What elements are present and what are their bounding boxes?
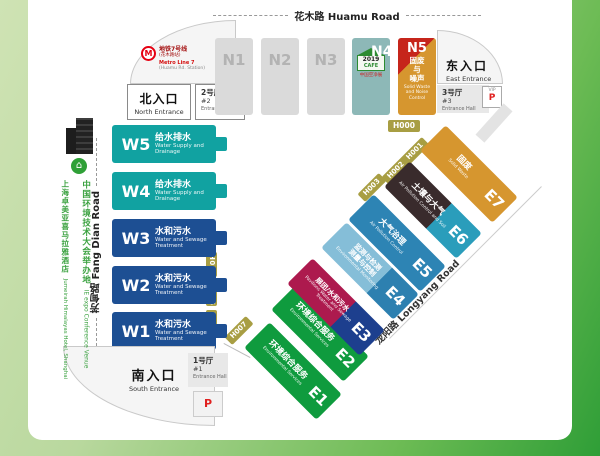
aisle-h007: H007 — [225, 316, 254, 345]
road-huamu-label: 花木路 Huamu Road — [294, 8, 399, 23]
road-dash — [213, 15, 288, 16]
building-icon — [66, 118, 94, 154]
hall-n2: N2 — [261, 38, 299, 115]
hall-tab — [216, 278, 227, 292]
hall-e6-text: 土壤与大气 Air Pollution Control and Soil — [395, 172, 455, 232]
hall-w5-cn: 给水排水 — [155, 133, 216, 143]
hall-n5-en: Solid Waste and Noise Control — [398, 85, 436, 101]
metro-text: 地铁7号线 (花木路站) Metro Line 7 (Huamu Rd. Sta… — [159, 46, 205, 71]
hall-w1: W1 水和污水 Water and Sewage Treatment — [112, 312, 216, 350]
hall-w3: W3 水和污水 Water and Sewage Treatment — [112, 219, 216, 257]
hall1-num: #1 — [193, 365, 228, 373]
building-icon-tower — [76, 118, 93, 154]
venue-note: 中国环境技术大会举办地 IE expo Conference Venue 上海卓… — [54, 180, 96, 390]
venue-note-cn2: 上海卓美亚喜马拉雅酒店 — [61, 180, 70, 274]
road-dash — [96, 138, 97, 186]
hall-w2: W2 水和污水 Water and Sewage Treatment — [112, 266, 216, 304]
parking-box: P — [193, 391, 223, 417]
hall-w2-en: Water and Sewage Treatment — [155, 284, 216, 297]
hall-w4: W4 给水排水 Water Supply and Drainage — [112, 172, 216, 210]
hall-w1-label: W1 — [117, 322, 155, 341]
hall-n5-cn: 固废 — [398, 56, 436, 65]
metro-station-en: (Huamu Rd. Station) — [159, 66, 205, 71]
entrance-hall-1: 1号厅 #1 Entrance Hall — [188, 353, 228, 387]
expo-floorplan: 花木路 Huamu Road 芳甸路 Fang Dian Road 龙阳路 Lo… — [0, 0, 600, 456]
hall-tab — [216, 324, 227, 338]
hall-w3-cn: 水和污水 — [155, 227, 216, 237]
hall-tab — [216, 137, 227, 151]
north-entrance-en: North Entrance — [128, 108, 190, 116]
hall-w5-text: 给水排水 Water Supply and Drainage — [155, 133, 216, 156]
hall-w5-en: Water Supply and Drainage — [155, 143, 216, 156]
venue-note-line2: 上海卓美亚喜马拉雅酒店 Jumeirah Himalayas Hotel, Sh… — [54, 180, 75, 390]
cafe-logo-cn: 中国空净展 — [357, 72, 385, 78]
hall-w4-cn: 给水排水 — [155, 180, 216, 190]
venue-note-en1: IE expo Conference Venue — [83, 290, 90, 369]
metro-info: M 地铁7号线 (花木路站) Metro Line 7 (Huamu Rd. S… — [141, 46, 213, 71]
hall-w1-text: 水和污水 Water and Sewage Treatment — [155, 320, 216, 343]
hall-w3-en: Water and Sewage Treatment — [155, 237, 216, 250]
hall-w1-en: Water and Sewage Treatment — [155, 330, 216, 343]
hall-n1: N1 — [215, 38, 253, 115]
east-entrance-en: East Entrance — [446, 75, 502, 83]
venue-note-en2: Jumeirah Himalayas Hotel, Shanghai — [62, 279, 68, 380]
hall-e6-cn: 土壤与大气 — [399, 172, 455, 228]
hall1-cn: 1号厅 — [193, 356, 228, 365]
cafe-logo-name: CAFE — [358, 64, 384, 70]
hall-tab — [216, 231, 227, 245]
hall-w5-label: W5 — [117, 135, 155, 154]
hall-w2-cn: 水和污水 — [155, 274, 216, 284]
hall-n5-cn: 噪声 — [398, 74, 436, 83]
hall-n5: N5 固废 与 噪声 Solid Waste and Noise Control — [398, 38, 436, 115]
parking-icon: P — [483, 94, 501, 103]
hall-w4-label: W4 — [117, 182, 155, 201]
road-dash — [406, 15, 481, 16]
hall-w3-label: W3 — [117, 229, 155, 248]
aisle-h000: H000 — [388, 120, 420, 132]
metro-station-cn: (花木路站) — [159, 53, 205, 58]
hall-n5-cn: 与 — [398, 65, 436, 74]
north-entrance-cn: 北入口 — [128, 90, 190, 107]
hall-n5-label: N5 — [398, 41, 436, 56]
hall-e7-text: 固废 Solid Waste — [431, 136, 491, 196]
hall-n3: N3 — [307, 38, 345, 115]
hall-n4: N4 2019 CAFE 中国空净展 — [352, 38, 390, 115]
hall-w4-en: Water Supply and Drainage — [155, 190, 216, 203]
venue-note-cn1: 中国环境技术大会举办地 — [81, 180, 91, 285]
hotel-marker-icon: ⌂ — [71, 158, 87, 174]
road-huamu: 花木路 Huamu Road — [213, 8, 481, 22]
hall-w1-cn: 水和污水 — [155, 320, 216, 330]
hall-w2-label: W2 — [117, 276, 155, 295]
venue-note-line1: 中国环境技术大会举办地 IE expo Conference Venue — [75, 180, 96, 390]
north-entrance-box: 北入口 North Entrance — [127, 84, 191, 120]
east-entrance-cn: 东入口 — [446, 57, 502, 74]
hall1-en: Entrance Hall — [193, 374, 228, 380]
hall-w5: W5 给水排水 Water Supply and Drainage — [112, 125, 216, 163]
metro-logo-icon: M — [141, 46, 156, 61]
vip-parking-box: VIP P — [482, 86, 502, 108]
hall-e7-cn: 固废 — [435, 136, 491, 192]
hall-tab — [216, 184, 227, 198]
hall-w4-text: 给水排水 Water Supply and Drainage — [155, 180, 216, 203]
hall-n4-label: N4 — [371, 44, 392, 60]
east-entrance-fan: 东入口 East Entrance — [437, 30, 503, 84]
hall-w2-text: 水和污水 Water and Sewage Treatment — [155, 274, 216, 297]
hall-w3-text: 水和污水 Water and Sewage Treatment — [155, 227, 216, 250]
